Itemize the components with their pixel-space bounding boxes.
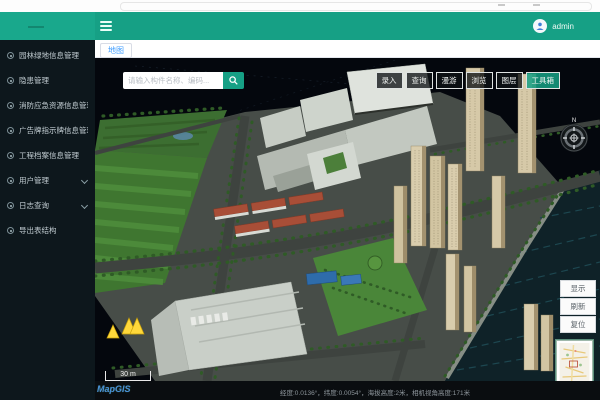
reset-button[interactable]: 复位	[560, 316, 596, 333]
window-maximize-icon[interactable]	[533, 4, 540, 6]
app-window: admin 园林绿地信息管理 隐患管理 消防应急资源信息管理 广告牌指示牌信息管…	[0, 12, 600, 400]
toolbar-button-toolbox[interactable]: 工具箱	[526, 72, 561, 89]
logo-mark	[28, 26, 44, 28]
map-scene[interactable]	[95, 58, 600, 381]
menu-bullet-icon	[7, 77, 14, 84]
mapgis-logo: MapGIS	[97, 384, 131, 394]
compass-north-label: N	[572, 118, 576, 124]
sidebar-item-user-management[interactable]: 用户管理	[0, 168, 95, 193]
main-area: 地图	[95, 40, 600, 400]
toolbar-button-roam[interactable]: 漫游	[436, 72, 463, 89]
user-name: admin	[552, 22, 574, 31]
search-button[interactable]	[223, 72, 244, 89]
toolbar-button-input[interactable]: 录入	[376, 72, 403, 89]
menu-bullet-icon	[7, 227, 14, 234]
search-icon	[229, 76, 238, 85]
user-avatar-icon	[533, 19, 547, 33]
map-toolbar: 录入 查询 漫游 浏览 图层 工具箱	[376, 72, 561, 89]
chevron-down-icon	[81, 202, 88, 209]
hamburger-menu-icon[interactable]	[100, 21, 112, 31]
screen: admin 园林绿地信息管理 隐患管理 消防应急资源信息管理 广告牌指示牌信息管…	[0, 0, 600, 400]
sidebar-item-engineering-archive-info[interactable]: 工程档案信息管理	[0, 143, 95, 168]
menu-bullet-icon	[7, 127, 14, 134]
sidebar-item-billboard-sign-info[interactable]: 广告牌指示牌信息管理	[0, 118, 95, 143]
refresh-button[interactable]: 刷新	[560, 298, 596, 315]
window-minimize-icon[interactable]	[498, 4, 505, 6]
menu-bullet-icon	[7, 177, 14, 184]
sidebar-item-export-table-structure[interactable]: 导出表结构	[0, 218, 95, 243]
top-bar: admin	[0, 12, 600, 40]
map-viewport[interactable]	[95, 58, 600, 381]
tab-map[interactable]: 地图	[100, 43, 132, 58]
chevron-down-icon	[81, 177, 88, 184]
user-menu[interactable]: admin	[533, 19, 574, 33]
camera-coordinates: 经度:0.0136°，纬度:0.0054°，海拔高度:2米，相机视角高度:171…	[280, 387, 470, 397]
sidebar-item-garden-green-info[interactable]: 园林绿地信息管理	[0, 43, 95, 68]
sidebar-item-fire-emergency-resources[interactable]: 消防应急资源信息管理	[0, 93, 95, 118]
menu-bullet-icon	[7, 52, 14, 59]
search-input[interactable]	[123, 72, 223, 89]
toolbar-button-layers[interactable]: 图层	[496, 72, 523, 89]
scale-bar: 30 m	[105, 371, 151, 381]
toolbar-button-query[interactable]: 查询	[406, 72, 433, 89]
component-search	[123, 72, 244, 89]
tab-bar: 地图	[95, 40, 600, 58]
menu-bullet-icon	[7, 202, 14, 209]
sidebar: 园林绿地信息管理 隐患管理 消防应急资源信息管理 广告牌指示牌信息管理 工程档案…	[0, 40, 95, 400]
show-button[interactable]: 显示	[560, 280, 596, 297]
toolbar-button-browse[interactable]: 浏览	[466, 72, 493, 89]
menu-bullet-icon	[7, 152, 14, 159]
sidebar-item-log-query[interactable]: 日志查询	[0, 193, 95, 218]
logo-area	[0, 12, 95, 40]
sidebar-item-hazard-management[interactable]: 隐患管理	[0, 68, 95, 93]
address-bar[interactable]	[120, 2, 592, 11]
browser-chrome	[0, 0, 600, 12]
scale-label: 30 m	[120, 371, 136, 378]
menu-bullet-icon	[7, 102, 14, 109]
compass-control[interactable]: N	[557, 115, 591, 155]
map-side-buttons: 显示 刷新 复位	[560, 280, 596, 333]
status-bar: MapGIS 经度:0.0136°，纬度:0.0054°，海拔高度:2米，相机视…	[95, 381, 600, 400]
